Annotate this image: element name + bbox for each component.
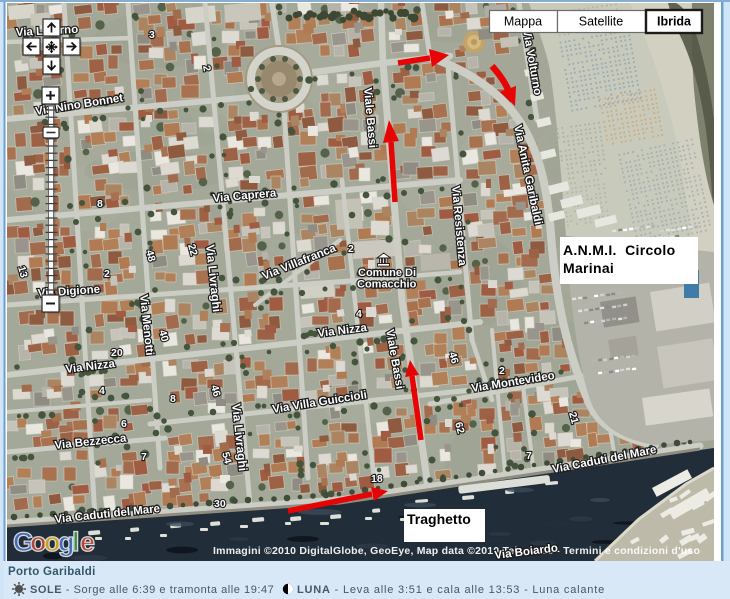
svg-text:7: 7	[526, 450, 532, 462]
svg-text:8: 8	[170, 393, 176, 405]
svg-text:LUNA - Leva alle 3:51 e cala a: LUNA - Leva alle 3:51 e cala alle 13:53 …	[297, 584, 605, 596]
svg-text:Marinai: Marinai	[563, 260, 614, 276]
svg-text:18: 18	[371, 473, 383, 485]
svg-text:Ibrida: Ibrida	[657, 15, 692, 29]
svg-text:Comacchio: Comacchio	[357, 279, 417, 291]
svg-text:Satellite: Satellite	[579, 15, 624, 29]
svg-text:7: 7	[141, 451, 147, 463]
svg-text:8: 8	[97, 198, 103, 210]
svg-text:SOLE - Sorge alle 6:39 e tramo: SOLE - Sorge alle 6:39 e tramonta alle 1…	[30, 584, 274, 596]
svg-text:Mappa: Mappa	[504, 15, 542, 29]
svg-text:Comune Di: Comune Di	[358, 267, 416, 279]
svg-text:Porto Garibaldi: Porto Garibaldi	[8, 566, 96, 578]
svg-text:4: 4	[356, 308, 362, 320]
svg-text:e: e	[80, 527, 95, 557]
svg-text:2: 2	[104, 268, 110, 280]
svg-text:2: 2	[348, 243, 354, 255]
svg-text:20: 20	[111, 347, 123, 359]
svg-text:3: 3	[149, 29, 155, 41]
svg-text:A.N.M.I. Circolo: A.N.M.I. Circolo	[563, 242, 675, 258]
svg-text:4: 4	[99, 385, 105, 397]
svg-text:Traghetto: Traghetto	[407, 511, 471, 527]
svg-text:Immagini ©2010 DigitalGlobe, G: Immagini ©2010 DigitalGlobe, GeoEye, Map…	[213, 545, 700, 557]
svg-text:6: 6	[121, 418, 127, 430]
svg-text:l: l	[72, 527, 80, 557]
svg-text:2: 2	[499, 365, 505, 377]
svg-text:30: 30	[214, 498, 226, 510]
